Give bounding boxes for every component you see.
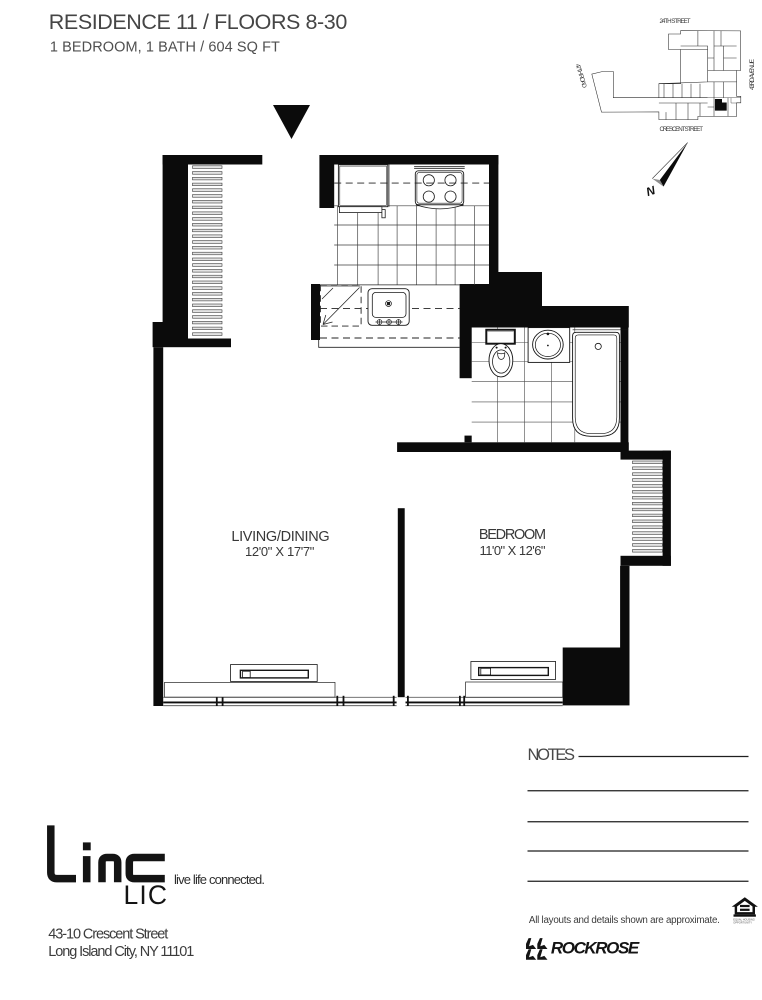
svg-text:47TH ROAD: 47TH ROAD — [574, 63, 588, 89]
svg-text:ROCKROSE: ROCKROSE — [551, 938, 640, 957]
svg-text:live life connected.: live life connected. — [174, 872, 265, 887]
svg-text:1 BEDROOM, 1 BATH / 604 SQ F: 1 BEDROOM, 1 BATH / 604 SQ FT — [50, 40, 280, 56]
svg-text:N: N — [644, 183, 657, 199]
svg-text:OPPORTUNITY: OPPORTUNITY — [733, 920, 752, 924]
svg-text:24TH STREET: 24TH STREET — [660, 18, 691, 25]
svg-text:RESIDENCE 11 / FLOORS 8-30: RESIDENCE 11 / FLOORS 8-30 — [49, 10, 348, 34]
svg-text:BEDROOM: BEDROOM — [479, 527, 546, 543]
svg-text:43-10 Crescent Street: 43-10 Crescent Street — [48, 927, 168, 943]
svg-text:43RD AVENUE: 43RD AVENUE — [749, 59, 756, 90]
svg-text:NOTES: NOTES — [528, 746, 576, 764]
svg-text:LIVING/DINING: LIVING/DINING — [231, 529, 329, 545]
svg-text:11'0" X 12'6": 11'0" X 12'6" — [480, 543, 546, 558]
svg-text:12'0" X 17'7": 12'0" X 17'7" — [245, 544, 315, 559]
svg-text:LIC: LIC — [124, 880, 168, 910]
svg-text:Long Island City, NY 11101: Long Island City, NY 11101 — [48, 944, 194, 960]
svg-text:CRESCENT STREET: CRESCENT STREET — [660, 126, 704, 133]
svg-text:All layouts and details shown: All layouts and details shown are approx… — [529, 915, 720, 926]
